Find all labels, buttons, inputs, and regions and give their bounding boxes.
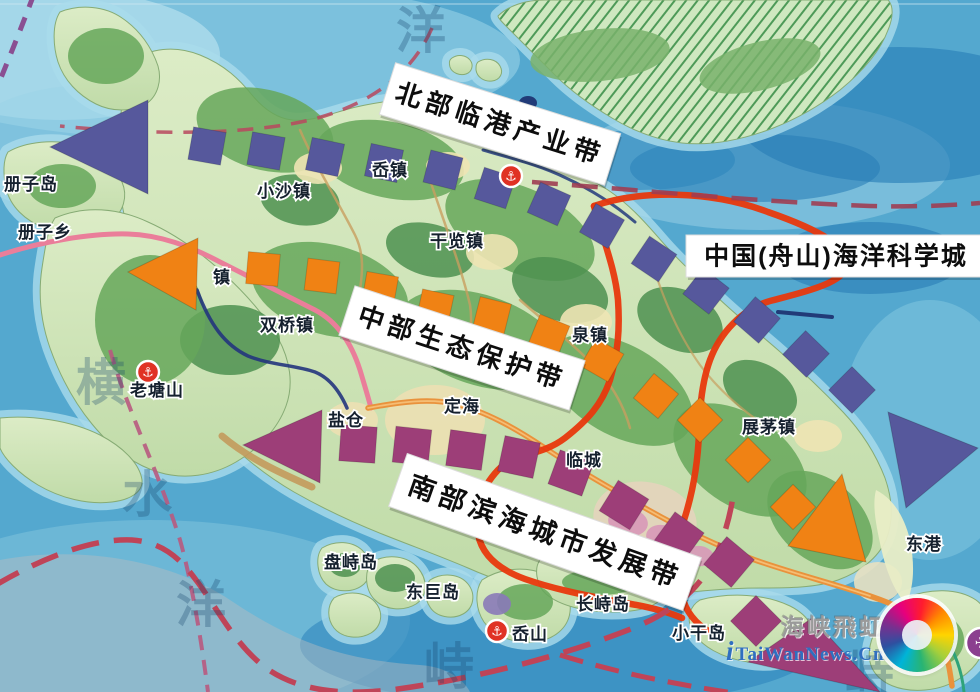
island-shape [476,59,502,81]
anchor-icon: ⚓ [500,165,522,187]
town-label: 岙镇 [372,160,408,180]
town-label: 盘峙岛 [324,552,378,572]
town-label: 东巨岛 [406,582,460,602]
town-label: 泉镇 [571,325,608,345]
town-label: 临城 [566,450,602,470]
belt-dash-square [247,132,285,170]
site-watermark: iTaiWanNews.Cn [726,636,896,667]
site-i-logo: i [726,636,735,666]
town-label: 老塘山 [129,380,184,400]
anchor-glyph: ⚓ [505,170,517,185]
town-label: 小沙镇 [257,181,311,201]
banner-science-city: 中国(舟山)海洋科学城 [686,235,980,280]
site-name: TaiWanNews.Cn [736,644,885,665]
sea-char: 洋 [396,3,446,59]
anchor-glyph: ⚓ [142,366,154,381]
town-label: 盐仓 [328,410,364,430]
anchor-glyph: ⚓ [491,625,503,640]
anchor-icon: ⚓ [486,620,508,642]
town-label: 镇 [213,267,231,287]
belt-dash-square [246,252,281,287]
town-label: 小干岛 [672,623,726,643]
town-label: 册子乡 [18,223,72,242]
breakwater-line [778,312,832,317]
urban-patch [483,593,511,615]
belt-dash-square [339,425,377,463]
town-label: 东港 [906,534,942,554]
town-label: 干览镇 [430,231,484,251]
island-shape [329,593,381,637]
island-shape [449,56,472,75]
news-map-image: 洋 横 水 洋 峙 峙 北部临港产业带 中部生态保护带 南部滨海城市发展带 中国… [0,0,980,692]
town-label: 定海 [444,396,480,416]
plane-glyph: ✈ [975,634,980,652]
sea-char: 水 [122,467,173,523]
town-label: 展茅镇 [742,417,796,437]
sea-char: 峙 [424,639,474,692]
town-label: 册子岛 [4,174,58,194]
rainbow-ring-logo [880,598,954,672]
belt-dash-square [304,258,340,294]
sea-char: 洋 [176,577,226,633]
urban-patch [794,420,842,452]
belt-dash-square [423,150,463,190]
town-label: 双桥镇 [260,315,314,335]
belt-dash-square [305,137,344,176]
map-canvas: 洋 横 水 洋 峙 峙 北部临港产业带 中部生态保护带 南部滨海城市发展带 中国… [0,0,980,692]
banner-science-label: 中国(舟山)海洋科学城 [704,242,968,271]
anchor-icon: ⚓ [137,361,159,383]
mountain-ridge [68,28,144,84]
belt-dash-square [446,430,487,471]
belt-dash-square [498,436,541,479]
town-label: 长峙岛 [576,594,630,614]
sea-char: 横 [76,355,126,411]
belt-dash-square [188,127,226,165]
town-label: 岙山 [512,624,548,644]
